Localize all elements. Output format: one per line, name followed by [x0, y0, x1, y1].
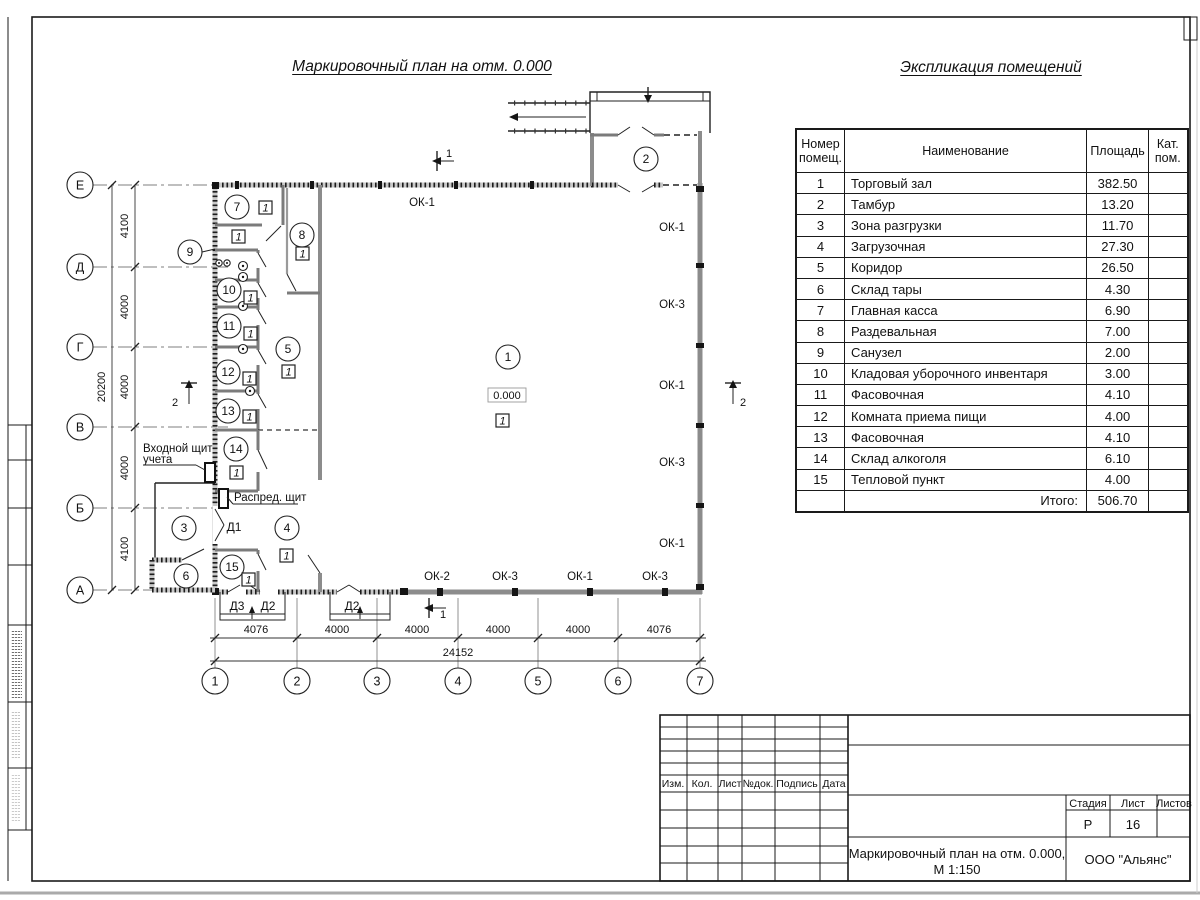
- cat-cell: [1149, 363, 1188, 384]
- room-number: 14: [229, 442, 243, 456]
- svg-text:1: 1: [262, 203, 268, 215]
- entry-panel-symbol: [205, 463, 215, 482]
- svg-text:1: 1: [235, 232, 241, 244]
- area-cell: 2.00: [1087, 342, 1149, 363]
- table-row: 8Раздевальная7.00: [796, 321, 1188, 342]
- room-number: 4: [284, 521, 291, 535]
- axis-label: 3: [374, 675, 381, 689]
- total-value-cell: 506.70: [1087, 490, 1149, 512]
- dim-text: 4000: [119, 295, 131, 319]
- name-cell: Комната приема пищи: [845, 406, 1087, 427]
- dim-text: 4000: [119, 375, 131, 399]
- area-cell: 382.50: [1087, 173, 1149, 194]
- axis-label: 1: [212, 675, 219, 689]
- axis-label: 4: [455, 675, 462, 689]
- cat-cell: [1149, 342, 1188, 363]
- svg-text:1: 1: [247, 329, 253, 341]
- window-label: ОК-3: [492, 571, 518, 583]
- area-cell: 3.00: [1087, 363, 1149, 384]
- ramp-arrow-icon: [509, 113, 518, 121]
- room-number: 6: [183, 569, 190, 583]
- name-cell: Санузел: [845, 342, 1087, 363]
- num-cell: 3: [796, 215, 845, 236]
- room-number: 9: [187, 245, 194, 259]
- svg-text:1: 1: [299, 249, 305, 261]
- svg-text:1: 1: [246, 412, 252, 424]
- revision-header: Дата: [822, 778, 845, 790]
- window-label: ОК-3: [659, 457, 685, 469]
- explication-title: Экспликация помещений: [795, 59, 1187, 77]
- axis-label: 6: [615, 675, 622, 689]
- cat-cell: [1149, 448, 1188, 469]
- room-number: 10: [222, 283, 236, 297]
- distribution-panel-symbol: [219, 489, 228, 508]
- num-cell: 7: [796, 300, 845, 321]
- axis-label: Б: [76, 502, 84, 516]
- num-cell: 8: [796, 321, 845, 342]
- table-row: 9Санузел2.00: [796, 342, 1188, 363]
- explication-table: Номер помещ. Наименование Площадь Кат. п…: [795, 128, 1189, 513]
- door-label: Д1: [227, 520, 242, 534]
- doc-title-line1: Маркировочный план на отм. 0.000,: [849, 846, 1066, 861]
- axis-grid-bottom: 4076 4000 4000 4000 4000 4076 24152 1 2 …: [202, 598, 713, 694]
- cat-cell: [1149, 236, 1188, 257]
- tambour-bottom-door: [618, 185, 654, 192]
- cat-cell: [1149, 278, 1188, 299]
- axis-label: 5: [535, 675, 542, 689]
- drawing-sheet: Е Д Г В Б А 4100 4000 4000 4000 4100 202…: [0, 0, 1200, 900]
- svg-text:0.000: 0.000: [493, 390, 521, 402]
- name-cell: Склад алкоголя: [845, 448, 1087, 469]
- area-cell: 4.00: [1087, 406, 1149, 427]
- revision-header: Лист: [719, 778, 742, 790]
- distribution-panel-label: Распред. щит: [234, 492, 307, 504]
- svg-text:1: 1: [285, 367, 291, 379]
- door-label: Д2: [345, 599, 360, 613]
- entry-arrow-icon: [644, 95, 652, 103]
- area-cell: 13.20: [1087, 194, 1149, 215]
- dim-text: 4100: [119, 214, 131, 238]
- header-cat: Кат. пом.: [1149, 129, 1188, 173]
- porches: [220, 592, 390, 620]
- num-cell: 10: [796, 363, 845, 384]
- name-cell: Фасовочная: [845, 384, 1087, 405]
- axis-label: А: [76, 584, 85, 598]
- window-label: ОК-1: [409, 197, 435, 209]
- dim-total-text: 24152: [443, 647, 474, 659]
- num-cell: 1: [796, 173, 845, 194]
- table-header-row: Номер помещ. Наименование Площадь Кат. п…: [796, 129, 1188, 173]
- cat-cell: [1149, 257, 1188, 278]
- area-cell: 7.00: [1087, 321, 1149, 342]
- header-num: Номер помещ.: [796, 129, 845, 173]
- area-cell: 4.30: [1087, 278, 1149, 299]
- table-total-row: Итого: 506.70: [796, 490, 1188, 512]
- svg-text:1: 1: [245, 575, 251, 587]
- num-cell: 9: [796, 342, 845, 363]
- plan-title: Маркировочный план на отм. 0.000: [262, 58, 582, 76]
- table-row: 13Фасовочная4.10: [796, 427, 1188, 448]
- num-cell: 14: [796, 448, 845, 469]
- dim-text: 4076: [244, 624, 268, 636]
- room-number: 1: [505, 350, 512, 364]
- window-label: ОК-3: [659, 299, 685, 311]
- room-number: 13: [221, 404, 235, 418]
- window-label: ОК-3: [642, 571, 668, 583]
- sheet-label: Лист: [1121, 798, 1145, 810]
- stage-label: Стадия: [1069, 798, 1107, 810]
- section-1-label: 1: [446, 148, 452, 160]
- table-row: 6Склад тары4.30: [796, 278, 1188, 299]
- dim-text: 4076: [647, 624, 671, 636]
- name-cell: Тамбур: [845, 194, 1087, 215]
- name-cell: Загрузочная: [845, 236, 1087, 257]
- table-row: 4Загрузочная27.30: [796, 236, 1188, 257]
- cat-cell: [1149, 384, 1188, 405]
- name-cell: Главная касса: [845, 300, 1087, 321]
- floor-type-markers: 1 1 1 1 1 1 1 1 1 1 1 1: [230, 201, 509, 587]
- num-cell: 4: [796, 236, 845, 257]
- window-label: ОК-1: [659, 380, 685, 392]
- room-number: 7: [234, 200, 241, 214]
- elevation-mark: 0.000: [488, 388, 526, 402]
- ramp: [508, 103, 590, 131]
- tambour: 2: [508, 87, 710, 192]
- svg-text:1: 1: [233, 468, 239, 480]
- area-cell: 6.10: [1087, 448, 1149, 469]
- sheet-value: 16: [1126, 817, 1140, 832]
- axis-label: 2: [294, 675, 301, 689]
- table-row: 2Тамбур13.20: [796, 194, 1188, 215]
- area-cell: 11.70: [1087, 215, 1149, 236]
- table-row: 1Торговый зал382.50: [796, 173, 1188, 194]
- num-cell: 12: [796, 406, 845, 427]
- stamp-text-smudge: [11, 630, 22, 698]
- company-name: ООО "Альянс": [1085, 852, 1172, 867]
- area-cell: 4.10: [1087, 384, 1149, 405]
- name-cell: Склад тары: [845, 278, 1087, 299]
- area-cell: 27.30: [1087, 236, 1149, 257]
- num-cell: 11: [796, 384, 845, 405]
- door-label: Д3: [230, 599, 245, 613]
- room-number: 12: [221, 365, 235, 379]
- dim-total-text: 20200: [96, 372, 108, 403]
- total-label-cell: Итого:: [845, 490, 1087, 512]
- tambour-top-door: [618, 127, 654, 135]
- name-cell: Тепловой пункт: [845, 469, 1087, 490]
- area-cell: 4.00: [1087, 469, 1149, 490]
- area-cell: 4.10: [1087, 427, 1149, 448]
- cat-cell: [1149, 215, 1188, 236]
- svg-text:1: 1: [283, 551, 289, 563]
- sheets-label: Листов: [1156, 798, 1192, 810]
- name-cell: Фасовочная: [845, 427, 1087, 448]
- stage-value: Р: [1084, 817, 1093, 832]
- svg-text:1: 1: [499, 416, 505, 428]
- dim-text: 4000: [325, 624, 349, 636]
- room-number: 8: [299, 228, 306, 242]
- num-cell: 13: [796, 427, 845, 448]
- cat-cell: [1149, 321, 1188, 342]
- window-label: ОК-1: [659, 538, 685, 550]
- num-cell: 6: [796, 278, 845, 299]
- dim-text: 4000: [566, 624, 590, 636]
- entry-panel-label2: учета: [143, 454, 173, 466]
- name-cell: Раздевальная: [845, 321, 1087, 342]
- room-number: 15: [225, 560, 239, 574]
- table-row: 12Комната приема пищи4.00: [796, 406, 1188, 427]
- revision-header: Подпись: [776, 778, 818, 790]
- cat-cell: [1149, 427, 1188, 448]
- revision-header: Изм.: [662, 778, 685, 790]
- cat-cell: [1149, 173, 1188, 194]
- loading-door-leaf: [308, 555, 320, 573]
- section-2-label: 2: [172, 397, 178, 409]
- room-number: 3: [181, 521, 188, 535]
- dim-text: 4100: [119, 537, 131, 561]
- table-row: 14Склад алкоголя6.10: [796, 448, 1188, 469]
- cat-cell: [1149, 406, 1188, 427]
- name-cell: Зона разгрузки: [845, 215, 1087, 236]
- cat-cell: [1149, 469, 1188, 490]
- cat-cell: [1149, 490, 1188, 512]
- doc-title-line2: М 1:150: [934, 862, 981, 877]
- window-labels: ОК-1 ОК-1 ОК-3 ОК-1 ОК-3 ОК-1 ОК-2 ОК-3 …: [409, 197, 685, 583]
- window-label: ОК-1: [659, 222, 685, 234]
- dim-text: 4000: [119, 456, 131, 480]
- axis-label: В: [76, 421, 84, 435]
- room-number: 11: [223, 319, 236, 333]
- door-label: Д2: [261, 599, 276, 613]
- total-empty-cell: [796, 490, 845, 512]
- num-cell: 2: [796, 194, 845, 215]
- table-row: 11Фасовочная4.10: [796, 384, 1188, 405]
- section-2-label: 2: [740, 397, 746, 409]
- num-cell: 5: [796, 257, 845, 278]
- revision-header: Кол.: [692, 778, 713, 790]
- window-label: ОК-1: [567, 571, 593, 583]
- table-row: 7Главная касса6.90: [796, 300, 1188, 321]
- window-label: ОК-2: [424, 571, 450, 583]
- cat-cell: [1149, 194, 1188, 215]
- title-block: Изм. Кол. Лист №док. Подпись Дата Стадия…: [660, 715, 1192, 881]
- axis-label: Е: [76, 179, 84, 193]
- room-number: 5: [285, 342, 292, 356]
- table-row: 15Тепловой пункт4.00: [796, 469, 1188, 490]
- header-name: Наименование: [845, 129, 1087, 173]
- area-cell: 6.90: [1087, 300, 1149, 321]
- axis-label: Г: [77, 341, 84, 355]
- name-cell: Торговый зал: [845, 173, 1087, 194]
- svg-text:1: 1: [246, 374, 252, 386]
- cat-cell: [1149, 300, 1188, 321]
- section-1-label: 1: [440, 609, 446, 621]
- side-stamp: [8, 425, 32, 830]
- axis-label: Д: [76, 261, 85, 275]
- table-row: 10Кладовая уборочного инвентаря3.00: [796, 363, 1188, 384]
- dim-text: 4000: [486, 624, 510, 636]
- axis-grid-left: Е Д Г В Б А 4100 4000 4000 4000 4100 202…: [67, 172, 228, 603]
- table-row: 5Коридор26.50: [796, 257, 1188, 278]
- axis-label: 7: [697, 675, 704, 689]
- svg-text:1: 1: [247, 293, 253, 305]
- dim-text: 4000: [405, 624, 429, 636]
- name-cell: Коридор: [845, 257, 1087, 278]
- room-number: 2: [643, 152, 650, 166]
- area-cell: 26.50: [1087, 257, 1149, 278]
- name-cell: Кладовая уборочного инвентаря: [845, 363, 1087, 384]
- header-area: Площадь: [1087, 129, 1149, 173]
- num-cell: 15: [796, 469, 845, 490]
- revision-header: №док.: [743, 778, 774, 790]
- table-row: 3Зона разгрузки11.70: [796, 215, 1188, 236]
- dim-left: 4100 4000 4000 4000 4100 20200: [96, 181, 139, 594]
